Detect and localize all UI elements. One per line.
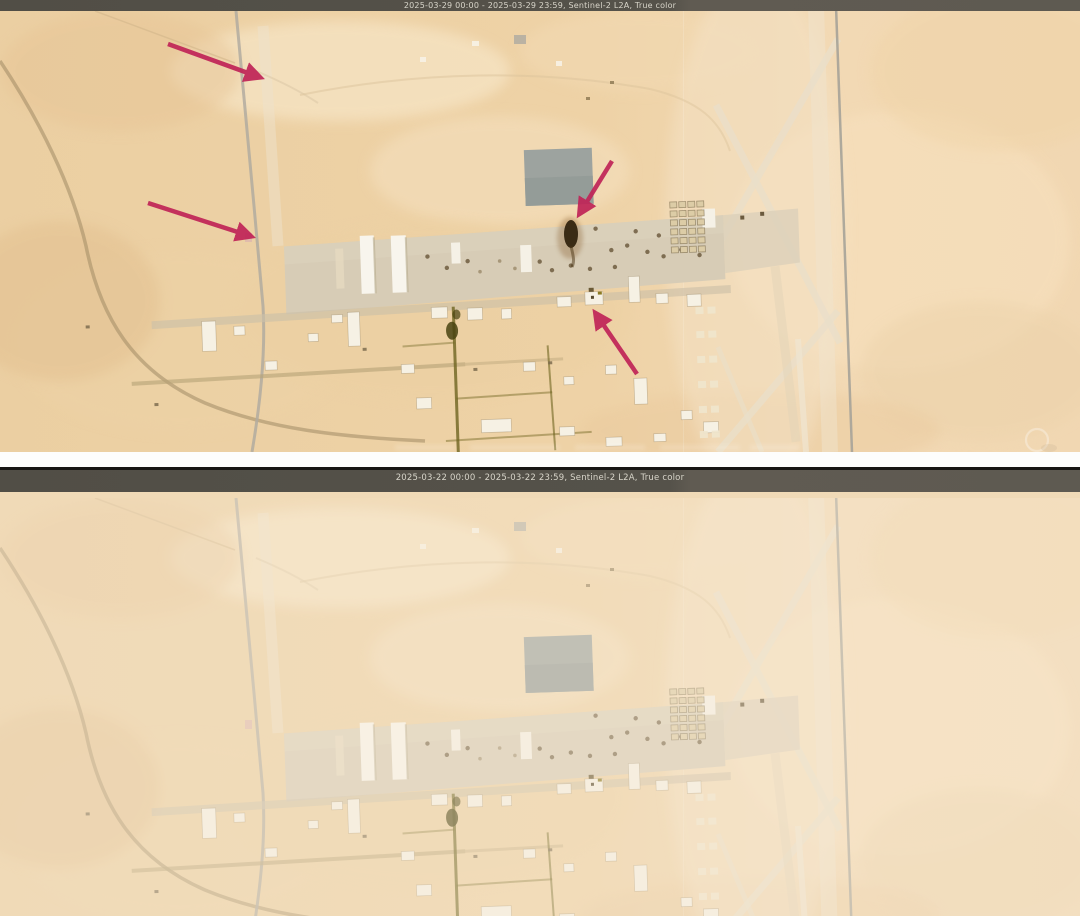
satellite-pane-after: 2025-03-29 00:00 - 2025-03-29 23:59, Sen… bbox=[0, 0, 1080, 452]
timestamp-bar-after: 2025-03-29 00:00 - 2025-03-29 23:59, Sen… bbox=[0, 0, 1080, 11]
satellite-scene-before bbox=[0, 498, 1080, 916]
timestamp-label-before: 2025-03-22 00:00 - 2025-03-22 23:59, Sen… bbox=[396, 473, 685, 483]
arrow-runway-object bbox=[168, 44, 259, 77]
arrow-perimeter-object bbox=[148, 203, 250, 236]
arrow-apron-burn-mark bbox=[580, 161, 612, 213]
satellite-pane-before: 2025-03-22 00:00 - 2025-03-22 23:59, Sen… bbox=[0, 470, 1080, 916]
annotation-layer bbox=[0, 11, 1080, 452]
timestamp-label-after: 2025-03-29 00:00 - 2025-03-29 23:59, Sen… bbox=[404, 1, 676, 10]
burn-mark bbox=[557, 217, 583, 267]
comparison-page: 2025-03-29 00:00 - 2025-03-29 23:59, Sen… bbox=[0, 0, 1080, 916]
satellite-image-after[interactable] bbox=[0, 11, 1080, 452]
satellite-image-before[interactable] bbox=[0, 492, 1080, 916]
pane-divider bbox=[0, 452, 1080, 467]
arrow-damaged-building bbox=[596, 314, 637, 374]
timestamp-bar-before: 2025-03-22 00:00 - 2025-03-22 23:59, Sen… bbox=[0, 470, 1080, 492]
provider-watermark bbox=[395, 429, 1057, 452]
